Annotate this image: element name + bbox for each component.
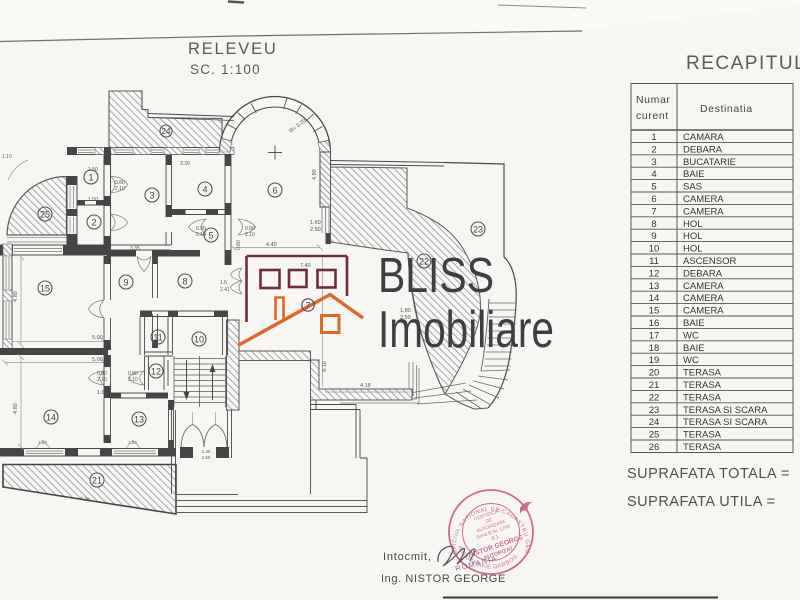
svg-text:RELEVEU: RELEVEU [188, 40, 278, 58]
svg-text:BAIE: BAIE [683, 343, 705, 354]
svg-text:18: 18 [649, 343, 660, 354]
svg-text:0.80: 0.80 [236, 240, 242, 250]
svg-text:13: 13 [649, 281, 660, 292]
svg-text:10: 10 [194, 334, 204, 344]
svg-text:Numar: Numar [636, 94, 671, 106]
svg-text:19: 19 [649, 355, 660, 366]
svg-text:13: 13 [134, 414, 144, 424]
svg-text:HOL: HOL [683, 244, 703, 255]
svg-text:HOL: HOL [683, 231, 703, 242]
svg-text:16: 16 [649, 318, 660, 329]
svg-text:BLISS: BLISS [378, 249, 494, 303]
svg-text:8: 8 [651, 219, 656, 230]
svg-text:23: 23 [649, 405, 660, 416]
svg-text:1.85: 1.85 [97, 390, 108, 396]
svg-text:BAIE: BAIE [683, 169, 705, 180]
svg-text:WC: WC [683, 355, 699, 366]
svg-text:BUCATARIE: BUCATARIE [683, 157, 736, 168]
svg-text:DEBARA: DEBARA [683, 144, 723, 155]
svg-text:1.50: 1.50 [128, 440, 137, 445]
svg-text:7: 7 [651, 206, 656, 217]
svg-text:BAIE: BAIE [683, 318, 705, 329]
svg-text:2.41: 2.41 [220, 287, 230, 293]
svg-text:2: 2 [651, 144, 656, 155]
svg-text:6: 6 [651, 194, 656, 205]
svg-text:25: 25 [649, 430, 660, 441]
svg-text:TERASA: TERASA [683, 442, 722, 453]
svg-text:CAMERA: CAMERA [683, 281, 724, 292]
svg-text:ASCENSOR: ASCENSOR [683, 256, 736, 267]
svg-text:1.5: 1.5 [220, 280, 227, 286]
svg-text:2.10: 2.10 [196, 232, 206, 238]
svg-text:4: 4 [202, 184, 207, 194]
svg-text:TERASA: TERASA [683, 392, 722, 403]
svg-text:CAMERA: CAMERA [683, 293, 724, 304]
svg-text:SAS: SAS [683, 182, 702, 193]
svg-text:CAMERA: CAMERA [683, 194, 724, 205]
svg-text:21: 21 [649, 380, 660, 391]
svg-text:11: 11 [649, 256, 659, 267]
svg-text:20: 20 [649, 368, 660, 379]
svg-text:Destinatia: Destinatia [700, 103, 753, 115]
svg-text:4.90: 4.90 [312, 169, 318, 180]
svg-text:2.10: 2.10 [245, 232, 255, 238]
svg-text:3: 3 [149, 190, 154, 200]
svg-text:25: 25 [40, 209, 50, 219]
svg-text:DEBARA: DEBARA [683, 268, 723, 279]
svg-text:CAMERA: CAMERA [683, 206, 724, 217]
svg-text:5: 5 [651, 182, 656, 193]
svg-text:1.40: 1.40 [202, 449, 211, 454]
svg-text:3.30: 3.30 [180, 161, 190, 167]
svg-text:2.50: 2.50 [202, 455, 211, 460]
svg-text:curent: curent [636, 110, 669, 122]
svg-text:2.50: 2.50 [310, 227, 321, 233]
svg-text:4.40: 4.40 [266, 242, 277, 248]
svg-text:WC: WC [683, 330, 699, 341]
svg-text:9: 9 [123, 277, 128, 287]
svg-text:22: 22 [649, 392, 660, 403]
svg-text:1: 1 [88, 172, 93, 182]
svg-text:10: 10 [649, 244, 660, 255]
svg-text:CAMARA: CAMARA [683, 132, 724, 143]
svg-text:11: 11 [153, 332, 162, 342]
svg-text:8: 8 [182, 276, 187, 286]
svg-text:2.10: 2.10 [97, 377, 107, 383]
svg-text:CAMERA: CAMERA [683, 306, 724, 317]
svg-text:17: 17 [649, 330, 660, 341]
svg-text:7.40: 7.40 [300, 263, 311, 269]
svg-text:26: 26 [649, 442, 660, 453]
svg-text:5.00: 5.00 [92, 335, 103, 341]
svg-text:SUPRAFATA UTILA =: SUPRAFATA UTILA = [627, 494, 776, 510]
svg-text:3.35: 3.35 [130, 246, 140, 252]
svg-text:1.80: 1.80 [38, 440, 47, 445]
svg-text:5: 5 [208, 230, 213, 240]
svg-text:2: 2 [91, 217, 96, 227]
svg-text:HOL: HOL [683, 219, 703, 230]
svg-text:1.50: 1.50 [88, 197, 98, 203]
svg-text:TERASA: TERASA [683, 380, 722, 391]
svg-text:RECAPITULATIE: RECAPITULATIE [686, 53, 800, 74]
svg-text:Imobiliare: Imobiliare [378, 301, 554, 359]
svg-text:4.80: 4.80 [13, 291, 19, 302]
svg-text:4: 4 [651, 169, 656, 180]
svg-text:Ing. NISTOR GEORGE: Ing. NISTOR GEORGE [381, 573, 506, 585]
svg-text:21: 21 [92, 475, 102, 485]
svg-text:4.18: 4.18 [360, 383, 371, 389]
svg-text:TERASA: TERASA [683, 368, 722, 379]
svg-text:12: 12 [151, 366, 161, 376]
svg-text:14: 14 [46, 412, 56, 422]
svg-text:2.10: 2.10 [115, 186, 125, 192]
svg-text:15: 15 [40, 283, 50, 293]
svg-text:3: 3 [651, 157, 656, 168]
svg-text:4.80: 4.80 [13, 403, 19, 414]
svg-text:SUPRAFATA TOTALA =: SUPRAFATA TOTALA = [627, 466, 790, 482]
svg-text:2.10: 2.10 [128, 377, 138, 383]
svg-text:TERASA: TERASA [683, 430, 722, 441]
svg-text:5.00: 5.00 [92, 357, 103, 363]
svg-text:12: 12 [649, 268, 660, 279]
svg-text:8.10: 8.10 [322, 361, 328, 372]
svg-text:1: 1 [651, 132, 656, 143]
svg-text:15: 15 [649, 306, 660, 317]
svg-text:1.10: 1.10 [2, 154, 12, 160]
svg-text:TERASA SI SCARA: TERASA SI SCARA [683, 417, 768, 428]
svg-text:1.50: 1.50 [88, 167, 98, 173]
svg-text:6: 6 [272, 185, 277, 195]
svg-text:24: 24 [162, 127, 171, 136]
svg-text:7: 7 [305, 301, 310, 311]
svg-text:9: 9 [651, 231, 656, 242]
svg-text:Intocmit,: Intocmit, [383, 551, 432, 563]
svg-text:SC. 1:100: SC. 1:100 [190, 62, 261, 77]
svg-text:TERASA SI SCARA: TERASA SI SCARA [683, 405, 768, 416]
svg-text:1.60: 1.60 [310, 220, 321, 226]
svg-text:24: 24 [649, 417, 660, 428]
svg-text:14: 14 [649, 293, 660, 304]
svg-text:23: 23 [473, 224, 483, 234]
